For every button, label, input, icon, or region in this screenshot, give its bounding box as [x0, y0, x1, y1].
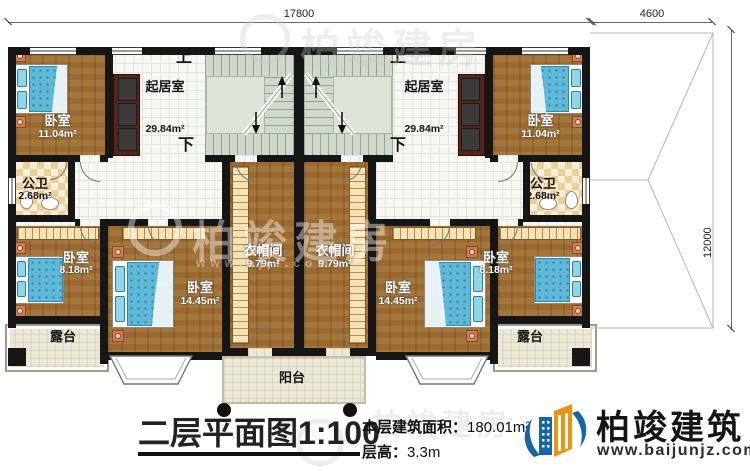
room-label: 公卫	[520, 177, 566, 191]
stair-arrow-down	[338, 125, 346, 134]
room-area: 29.84m²	[384, 124, 464, 135]
floor-height-label: 层高：	[362, 444, 407, 461]
room-label: 露台	[35, 330, 91, 344]
floor-height-line: 层高：3.3m	[362, 441, 440, 462]
room-label: 卧室	[48, 251, 104, 265]
room-label: 露台	[502, 330, 558, 344]
room-area: 11.04m²	[20, 129, 95, 140]
room-label: 卧室	[168, 281, 232, 295]
room-area: 14.45m²	[364, 296, 432, 307]
watermark-url: www.bjjf.com	[196, 256, 333, 270]
room-area: 11.04m²	[503, 129, 578, 140]
room-label: 卧室	[468, 251, 524, 265]
room-area: 8.18m²	[466, 265, 526, 276]
room-label: 起居室	[125, 80, 205, 94]
title-underline	[138, 452, 360, 456]
room-label: 阳台	[262, 371, 322, 385]
room-area: 2.68m²	[518, 191, 568, 202]
company-url: www.baijunjz.com	[597, 442, 750, 460]
floor-area-label: 本层建筑面积：	[362, 419, 467, 436]
stair-down-label: 下	[178, 138, 194, 154]
stair-arrow-down	[252, 125, 260, 134]
adjacent-roof-outline	[590, 33, 713, 328]
company-logo-icon	[520, 397, 592, 469]
room-label: 公卫	[12, 177, 58, 191]
room-label: 卧室	[503, 114, 578, 128]
room-area: 14.45m²	[166, 296, 234, 307]
room-area: 2.68m²	[10, 191, 60, 202]
room-label: 起居室	[384, 80, 464, 94]
room-area: 29.84m²	[125, 124, 205, 135]
floor-area-line: 本层建筑面积：180.01m²	[362, 416, 530, 437]
floor-height-value: 3.3m	[407, 444, 440, 461]
room-label: 卧室	[20, 114, 95, 128]
floorplan-canvas: 17800 4600 12000	[0, 0, 750, 471]
plan-title-text: 二层平面图	[138, 415, 298, 451]
plan-title: 二层平面图1:100	[138, 408, 368, 454]
room-area: 8.18m²	[46, 265, 106, 276]
watermark-badge-icon	[128, 202, 182, 256]
stair-up-label: 上	[176, 50, 192, 66]
room-label: 卧室	[366, 281, 430, 295]
watermark-badge-icon	[240, 14, 290, 64]
watermark-text: 柏竣建房	[300, 16, 484, 74]
stair-down-label: 下	[390, 138, 406, 154]
